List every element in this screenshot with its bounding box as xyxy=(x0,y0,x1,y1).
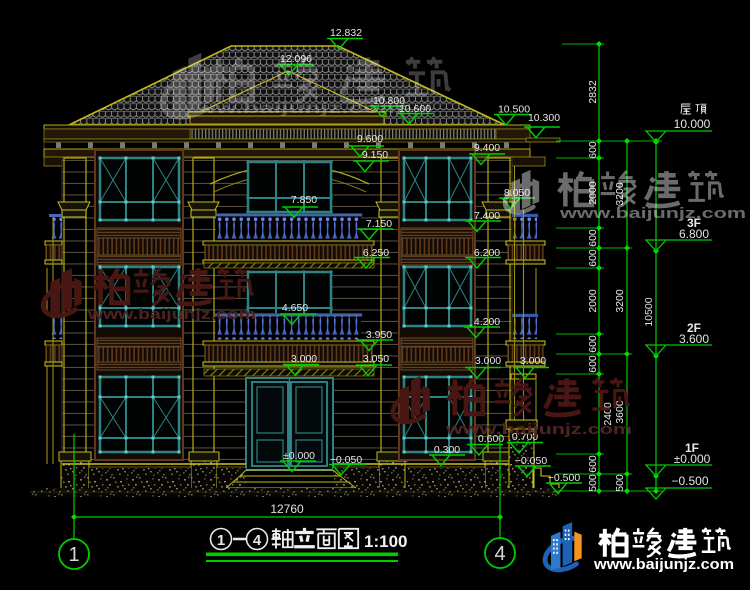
svg-text:12760: 12760 xyxy=(270,502,304,516)
svg-text:600: 600 xyxy=(587,229,599,247)
svg-text:www.baijunjz.com: www.baijunjz.com xyxy=(593,556,734,573)
svg-text:−0.500: −0.500 xyxy=(548,472,581,484)
svg-text:3200: 3200 xyxy=(614,289,626,313)
svg-text:7.850: 7.850 xyxy=(291,194,317,206)
svg-text:500: 500 xyxy=(614,474,626,492)
svg-text:7.400: 7.400 xyxy=(474,210,500,222)
svg-text:600: 600 xyxy=(587,455,599,473)
svg-text:600: 600 xyxy=(587,335,599,353)
svg-text:1:100: 1:100 xyxy=(364,532,407,551)
svg-text:2000: 2000 xyxy=(587,289,599,313)
svg-text:600: 600 xyxy=(587,249,599,267)
svg-text:4.200: 4.200 xyxy=(474,316,500,328)
svg-text:3.000: 3.000 xyxy=(520,355,546,367)
svg-text:www.baijunjz.com: www.baijunjz.com xyxy=(87,306,256,323)
svg-text:6.800: 6.800 xyxy=(679,227,709,241)
svg-text:3.950: 3.950 xyxy=(366,329,392,341)
svg-text:www.baijunjz.com: www.baijunjz.com xyxy=(559,205,746,222)
svg-text:3.000: 3.000 xyxy=(475,355,501,367)
svg-text:4.650: 4.650 xyxy=(282,302,308,314)
svg-text:−0.500: −0.500 xyxy=(671,474,708,488)
svg-text:4: 4 xyxy=(253,532,262,549)
svg-text:±0.000: ±0.000 xyxy=(283,450,315,462)
svg-text:7.150: 7.150 xyxy=(366,218,392,230)
svg-text:−0.050: −0.050 xyxy=(515,455,548,467)
svg-text:600: 600 xyxy=(587,355,599,373)
svg-text:1: 1 xyxy=(68,544,79,566)
svg-text:2832: 2832 xyxy=(587,80,599,104)
svg-text:9.600: 9.600 xyxy=(357,133,383,145)
svg-text:9.150: 9.150 xyxy=(362,149,388,161)
svg-text:12.832: 12.832 xyxy=(330,27,362,39)
svg-text:4: 4 xyxy=(494,543,505,565)
svg-text:0.300: 0.300 xyxy=(434,444,460,456)
svg-text:10500: 10500 xyxy=(643,297,655,326)
svg-text:3.050: 3.050 xyxy=(363,353,389,365)
svg-text:10.500: 10.500 xyxy=(498,104,530,116)
svg-text:3.000: 3.000 xyxy=(291,353,317,365)
svg-text:www.baijunjz.com: www.baijunjz.com xyxy=(173,100,403,117)
svg-text:±0.000: ±0.000 xyxy=(674,452,711,466)
svg-text:3.600: 3.600 xyxy=(679,332,709,346)
svg-text:600: 600 xyxy=(587,141,599,159)
svg-text:1: 1 xyxy=(217,532,225,549)
svg-text:500: 500 xyxy=(587,474,599,492)
svg-text:10.300: 10.300 xyxy=(528,112,560,124)
svg-text:10.000: 10.000 xyxy=(674,117,711,131)
svg-text:www.baijunjz.com: www.baijunjz.com xyxy=(445,421,632,438)
svg-text:9.400: 9.400 xyxy=(474,142,500,154)
